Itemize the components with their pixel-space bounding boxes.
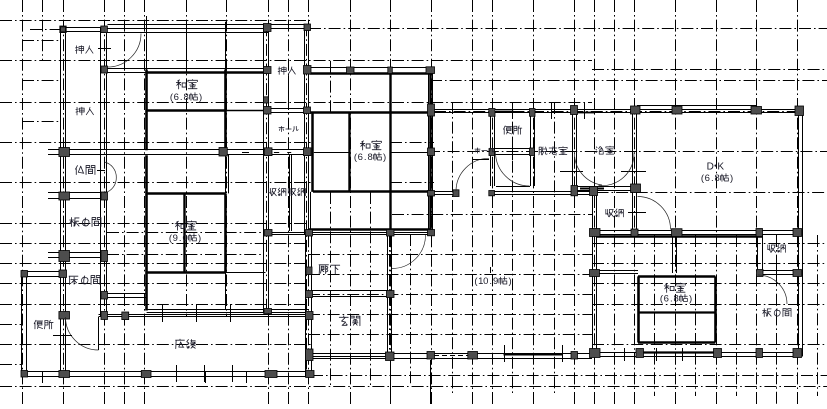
svg-text:): )	[509, 276, 512, 287]
svg-text:.: .	[489, 276, 492, 287]
svg-text:0: 0	[483, 276, 488, 287]
svg-text:): )	[199, 92, 202, 103]
svg-text:.: .	[180, 92, 183, 103]
svg-text:K: K	[717, 162, 724, 173]
svg-text:.: .	[711, 173, 714, 184]
svg-text:): )	[383, 152, 386, 163]
svg-text:): )	[730, 173, 733, 184]
svg-text:6: 6	[705, 173, 710, 184]
svg-text:8: 8	[184, 92, 189, 103]
svg-text:0: 0	[183, 233, 188, 244]
svg-text:8: 8	[715, 173, 720, 184]
svg-text:6: 6	[174, 92, 179, 103]
svg-text:8: 8	[674, 293, 679, 304]
svg-text:6: 6	[664, 293, 669, 304]
svg-text:8: 8	[368, 152, 373, 163]
svg-text:9: 9	[493, 276, 498, 287]
svg-text:): )	[689, 293, 692, 304]
svg-text:.: .	[364, 152, 367, 163]
svg-text:.: .	[179, 233, 182, 244]
svg-text:6: 6	[358, 152, 363, 163]
svg-text:.: .	[670, 293, 673, 304]
svg-text:): )	[198, 233, 201, 244]
svg-text:9: 9	[173, 233, 178, 244]
